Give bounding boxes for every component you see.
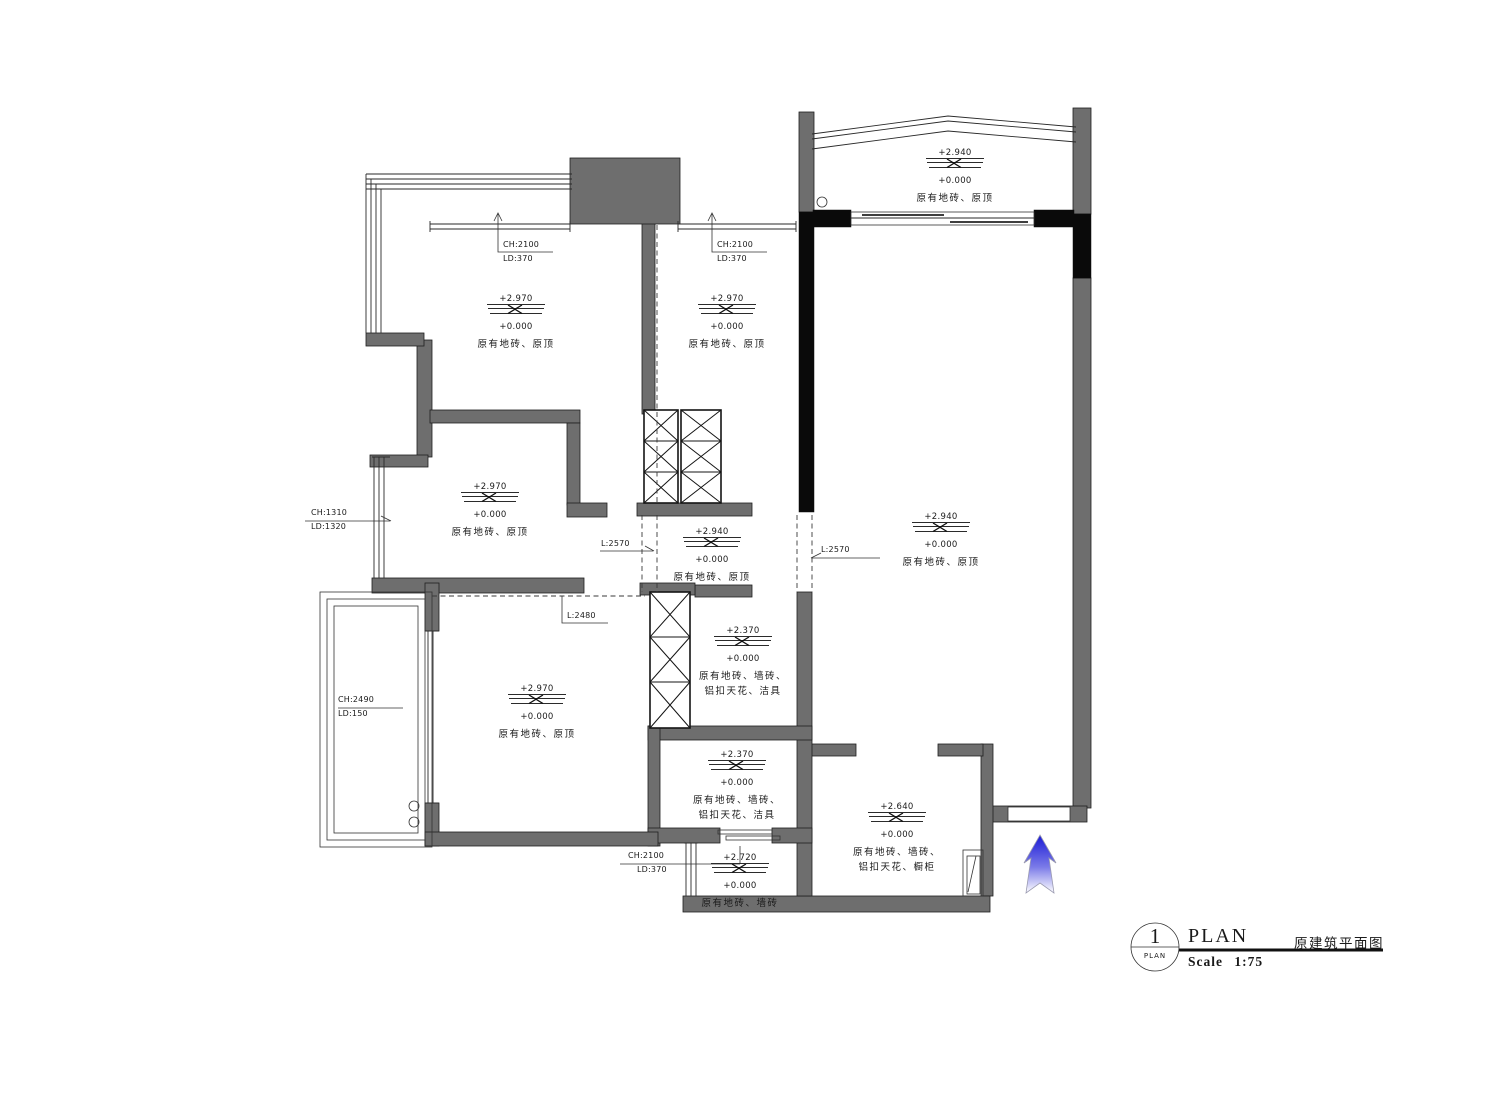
window-tag-balcony-left: CH:2490 LD:150 bbox=[338, 695, 374, 718]
level-symbol-icon bbox=[509, 695, 565, 704]
level-symbol-icon bbox=[927, 159, 983, 168]
scale-label: Scale 1:75 bbox=[1188, 954, 1263, 970]
level-symbol-icon bbox=[462, 493, 518, 502]
floor-level-value: +0.000 bbox=[924, 540, 957, 550]
window-sill: LD:370 bbox=[503, 254, 539, 263]
room-finish-note: 原有地砖、原顶 bbox=[405, 526, 575, 539]
upper-level-value: +2.970 bbox=[698, 294, 755, 305]
window-height: CH:2490 bbox=[338, 695, 374, 704]
upper-level-value: +2.970 bbox=[487, 294, 544, 305]
room-finish-note: 原有地砖、墙砖、 bbox=[812, 846, 982, 859]
room-finish-note: 原有地砖、墙砖、 bbox=[652, 794, 822, 807]
floor-level-value: +0.000 bbox=[726, 654, 759, 664]
detail-circle-caption: PLAN bbox=[1133, 952, 1177, 960]
level-marker-bathroom-lower: +2.370 +0.000 原有地砖、墙砖、 铝扣天花、洁具 bbox=[652, 742, 822, 822]
window-height: CH:2100 bbox=[717, 240, 753, 249]
upper-level-value: +2.970 bbox=[461, 482, 518, 493]
level-symbol-icon bbox=[684, 538, 740, 547]
window-height: CH:1310 bbox=[311, 508, 347, 517]
level-marker-bedroom-mid: +2.970 +0.000 原有地砖、原顶 bbox=[642, 286, 812, 351]
window-sill: LD:1320 bbox=[311, 522, 347, 531]
level-symbol-icon bbox=[869, 813, 925, 822]
room-finish-note: 原有地砖、墙砖 bbox=[655, 897, 825, 910]
floor-level-value: +0.000 bbox=[938, 176, 971, 186]
room-finish-note: 原有地砖、原顶 bbox=[431, 338, 601, 351]
room-finish-note: 铝扣天花、洁具 bbox=[652, 809, 822, 822]
room-finish-note: 原有地砖、原顶 bbox=[627, 571, 797, 584]
level-marker-bathroom-upper: +2.370 +0.000 原有地砖、墙砖、 铝扣天花、洁具 bbox=[658, 618, 828, 698]
walls-black-layer bbox=[799, 210, 1091, 512]
entry-arrow-icon bbox=[1024, 835, 1056, 893]
opening-tag-hall-left: L:2570 bbox=[601, 539, 630, 548]
room-finish-note: 铝扣天花、橱柜 bbox=[812, 861, 982, 874]
level-symbol-icon bbox=[488, 305, 544, 314]
window-tag-mid-left: CH:1310 LD:1320 bbox=[311, 508, 347, 531]
detail-number: 1 bbox=[1140, 924, 1170, 949]
room-finish-note: 原有地砖、墙砖、 bbox=[658, 670, 828, 683]
level-symbol-icon bbox=[715, 637, 771, 646]
window-sill: LD:370 bbox=[717, 254, 753, 263]
window-height: CH:2100 bbox=[628, 851, 667, 860]
window-tag-utility: CH:2100 LD:370 bbox=[628, 851, 667, 874]
room-finish-note: 原有地砖、原顶 bbox=[870, 192, 1040, 205]
level-symbol-icon bbox=[699, 305, 755, 314]
floor-level-value: +0.000 bbox=[520, 712, 553, 722]
room-finish-note: 铝扣天花、洁具 bbox=[658, 685, 828, 698]
level-marker-hallway: +2.940 +0.000 原有地砖、原顶 bbox=[627, 519, 797, 584]
level-symbol-icon bbox=[913, 523, 969, 532]
window-height: CH:2100 bbox=[503, 240, 539, 249]
upper-level-value: +2.940 bbox=[683, 527, 740, 538]
floor-level-value: +0.000 bbox=[723, 881, 756, 891]
opening-tag-lower-left: L:2480 bbox=[567, 611, 596, 620]
floorplan-page: { "colors": { "wall_gray": "#6e6e6e", "w… bbox=[0, 0, 1500, 1114]
floor-level-value: +0.000 bbox=[710, 322, 743, 332]
window-tag-bedroom-mid: CH:2100 LD:370 bbox=[717, 240, 753, 263]
level-marker-living-room: +2.940 +0.000 原有地砖、原顶 bbox=[856, 504, 1026, 569]
level-marker-utility: +2.720 +0.000 原有地砖、墙砖 bbox=[655, 845, 825, 910]
level-marker-top-balcony: +2.940 +0.000 原有地砖、原顶 bbox=[870, 140, 1040, 205]
upper-level-value: +2.370 bbox=[714, 626, 771, 637]
upper-level-value: +2.970 bbox=[508, 684, 565, 695]
floor-level-value: +0.000 bbox=[473, 510, 506, 520]
upper-level-value: +2.720 bbox=[711, 853, 768, 864]
level-marker-room-lower-left: +2.970 +0.000 原有地砖、原顶 bbox=[452, 676, 622, 741]
upper-level-value: +2.940 bbox=[912, 512, 969, 523]
window-sill: LD:370 bbox=[637, 865, 667, 874]
room-finish-note: 原有地砖、原顶 bbox=[642, 338, 812, 351]
upper-level-value: +2.640 bbox=[868, 802, 925, 813]
window-tag-bedroom-left: CH:2100 LD:370 bbox=[503, 240, 539, 263]
level-marker-room-mid-left: +2.970 +0.000 原有地砖、原顶 bbox=[405, 474, 575, 539]
level-marker-bedroom-left: +2.970 +0.000 原有地砖、原顶 bbox=[431, 286, 601, 351]
floor-level-value: +0.000 bbox=[720, 778, 753, 788]
window-sill: LD:150 bbox=[338, 709, 374, 718]
room-finish-note: 原有地砖、原顶 bbox=[452, 728, 622, 741]
floor-level-value: +0.000 bbox=[499, 322, 532, 332]
level-marker-kitchen: +2.640 +0.000 原有地砖、墙砖、 铝扣天花、橱柜 bbox=[812, 794, 982, 874]
drawing-title-cn: 原建筑平面图 bbox=[1294, 932, 1384, 952]
opening-tag-hall-right: L:2570 bbox=[821, 545, 850, 554]
level-symbol-icon bbox=[712, 864, 768, 873]
floor-level-value: +0.000 bbox=[880, 830, 913, 840]
upper-level-value: +2.370 bbox=[708, 750, 765, 761]
level-symbol-icon bbox=[709, 761, 765, 770]
room-finish-note: 原有地砖、原顶 bbox=[856, 556, 1026, 569]
upper-level-value: +2.940 bbox=[926, 148, 983, 159]
drawing-title: PLAN bbox=[1188, 925, 1248, 948]
floor-level-value: +0.000 bbox=[695, 555, 728, 565]
